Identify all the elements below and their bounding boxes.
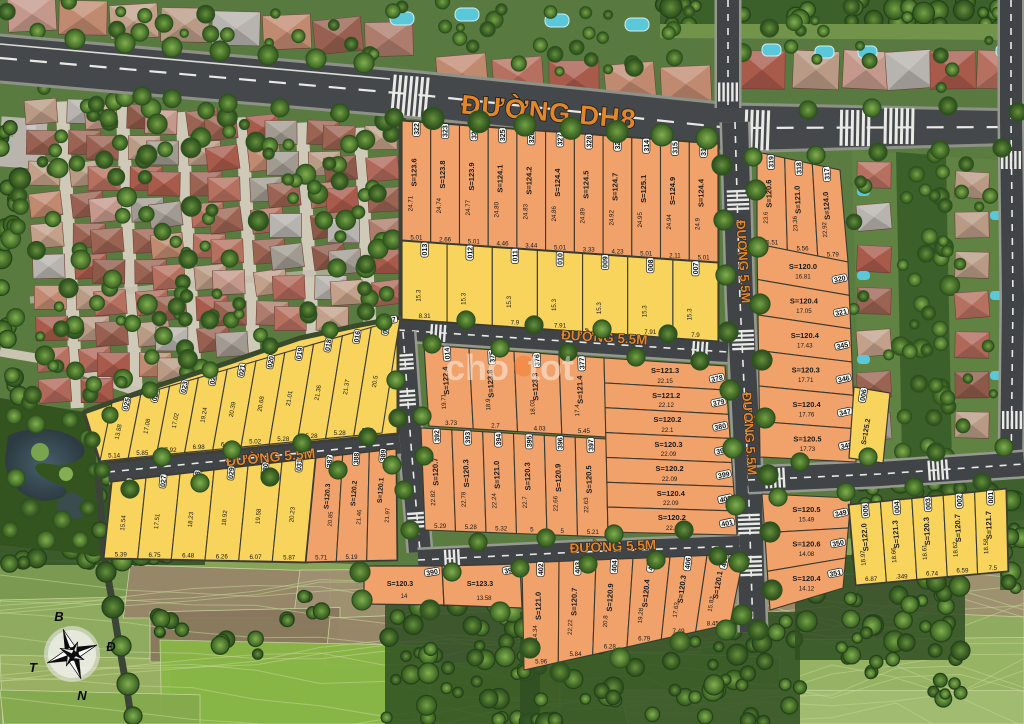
svg-text:007: 007 xyxy=(693,262,700,274)
svg-text:5.79: 5.79 xyxy=(827,252,840,259)
svg-text:6.74: 6.74 xyxy=(926,571,939,578)
svg-text:5.28: 5.28 xyxy=(334,430,347,437)
svg-text:22.1: 22.1 xyxy=(661,427,674,434)
svg-text:S=123.6: S=123.6 xyxy=(409,158,418,186)
svg-text:S=121.0: S=121.0 xyxy=(492,461,502,489)
svg-text:S=121.3: S=121.3 xyxy=(890,520,901,549)
svg-text:24.80: 24.80 xyxy=(494,201,501,217)
svg-text:22.09: 22.09 xyxy=(663,500,679,507)
svg-text:S=121.2: S=121.2 xyxy=(652,391,680,400)
svg-text:S=120.3: S=120.3 xyxy=(523,462,533,490)
svg-text:S=120.9: S=120.9 xyxy=(605,583,615,612)
svg-text:002: 002 xyxy=(957,495,965,507)
svg-text:8.31: 8.31 xyxy=(419,313,432,320)
svg-text:.349: .349 xyxy=(896,573,909,580)
svg-text:18.97: 18.97 xyxy=(859,549,867,566)
svg-text:S=121.7: S=121.7 xyxy=(984,511,994,539)
svg-text:22.7: 22.7 xyxy=(522,496,529,509)
svg-text:S=125.1: S=125.1 xyxy=(639,175,648,203)
svg-text:S=121.4: S=121.4 xyxy=(575,375,585,404)
svg-text:S=120.6: S=120.6 xyxy=(792,540,820,549)
svg-text:18.61: 18.61 xyxy=(921,544,929,560)
svg-text:6.98: 6.98 xyxy=(193,444,206,451)
svg-text:402: 402 xyxy=(538,563,545,575)
svg-text:S=120.2: S=120.2 xyxy=(653,415,681,424)
svg-text:24.77: 24.77 xyxy=(465,199,472,215)
svg-text:5.85: 5.85 xyxy=(136,450,149,457)
svg-text:6.07: 6.07 xyxy=(249,554,262,561)
svg-text:24.86: 24.86 xyxy=(551,205,558,221)
svg-text:315: 315 xyxy=(673,142,680,154)
svg-text:S=120.0: S=120.0 xyxy=(789,262,817,271)
svg-text:6.75: 6.75 xyxy=(148,552,161,559)
svg-text:5.28: 5.28 xyxy=(465,524,478,531)
svg-text:22.63: 22.63 xyxy=(583,497,590,513)
svg-text:S=123.9: S=123.9 xyxy=(467,162,476,190)
svg-text:13.58: 13.58 xyxy=(476,596,492,602)
svg-text:15.3: 15.3 xyxy=(641,305,648,318)
svg-text:011: 011 xyxy=(513,250,520,261)
svg-text:17.4: 17.4 xyxy=(574,404,581,417)
svg-text:S=121.0: S=121.0 xyxy=(534,592,543,620)
svg-text:22.15: 22.15 xyxy=(657,378,673,385)
svg-text:5.84: 5.84 xyxy=(569,651,582,658)
svg-text:5: 5 xyxy=(560,528,564,535)
svg-text:S=124.4: S=124.4 xyxy=(697,178,706,207)
svg-text:24.94: 24.94 xyxy=(666,214,673,230)
svg-text:5.14: 5.14 xyxy=(108,453,121,460)
svg-text:5.32: 5.32 xyxy=(495,525,508,532)
svg-text:388: 388 xyxy=(353,452,361,464)
svg-text:18.62: 18.62 xyxy=(952,541,960,557)
svg-text:406: 406 xyxy=(684,557,692,570)
svg-text:6.87: 6.87 xyxy=(865,576,878,583)
svg-text:7.5: 7.5 xyxy=(988,565,997,572)
svg-text:Đ: Đ xyxy=(106,639,116,654)
svg-text:17.05: 17.05 xyxy=(796,308,812,315)
svg-text:24.83: 24.83 xyxy=(522,203,529,219)
svg-text:18.9: 18.9 xyxy=(485,398,493,411)
svg-text:S=120.7: S=120.7 xyxy=(569,588,579,616)
svg-text:24.92: 24.92 xyxy=(609,209,616,225)
svg-text:5.21: 5.21 xyxy=(587,529,600,536)
svg-text:S=120.3: S=120.3 xyxy=(792,366,820,375)
svg-text:397: 397 xyxy=(588,439,595,451)
svg-text:010: 010 xyxy=(558,253,565,265)
svg-text:395: 395 xyxy=(527,435,534,447)
svg-text:S=120.7: S=120.7 xyxy=(953,514,963,543)
svg-text:22.24: 22.24 xyxy=(491,492,499,508)
svg-text:S=120.3: S=120.3 xyxy=(654,440,682,449)
svg-text:S=124.7: S=124.7 xyxy=(611,173,620,201)
svg-text:23.6: 23.6 xyxy=(763,211,770,224)
svg-text:14.12: 14.12 xyxy=(799,585,815,592)
svg-text:16.81: 16.81 xyxy=(795,274,811,281)
svg-text:15.3: 15.3 xyxy=(686,308,693,321)
svg-text:S=124.5: S=124.5 xyxy=(582,171,591,199)
svg-text:S=120.3: S=120.3 xyxy=(922,517,933,546)
svg-text:001: 001 xyxy=(988,492,995,504)
svg-text:S=120.4: S=120.4 xyxy=(657,489,686,498)
svg-text:17.43: 17.43 xyxy=(797,343,813,350)
svg-text:N: N xyxy=(77,688,87,703)
svg-text:S=121.0: S=121.0 xyxy=(793,185,803,214)
svg-text:5.71: 5.71 xyxy=(315,555,328,562)
svg-text:013: 013 xyxy=(422,244,429,256)
svg-text:5.96: 5.96 xyxy=(535,659,548,666)
svg-text:22.78: 22.78 xyxy=(460,491,468,507)
svg-text:15.3: 15.3 xyxy=(461,292,468,305)
svg-text:7.9: 7.9 xyxy=(691,332,700,339)
svg-text:17.71: 17.71 xyxy=(798,377,814,384)
svg-text:012: 012 xyxy=(467,247,474,259)
svg-text:17.76: 17.76 xyxy=(799,411,815,418)
svg-text:tot: tot xyxy=(528,347,574,388)
svg-text:6.79: 6.79 xyxy=(638,636,651,643)
svg-text:S=120.7: S=120.7 xyxy=(430,457,440,485)
svg-text:24.74: 24.74 xyxy=(436,197,443,213)
svg-text:6.26: 6.26 xyxy=(216,553,229,560)
svg-text:377: 377 xyxy=(579,357,586,369)
svg-text:S=123.8: S=123.8 xyxy=(438,160,447,188)
svg-text:S=120.4: S=120.4 xyxy=(793,400,822,409)
svg-text:S=120.3: S=120.3 xyxy=(461,459,471,487)
svg-text:328: 328 xyxy=(586,136,593,148)
svg-text:5.45: 5.45 xyxy=(578,428,591,435)
svg-text:22.12: 22.12 xyxy=(658,402,674,409)
svg-text:S=120.5: S=120.5 xyxy=(584,465,594,493)
svg-text:cho: cho xyxy=(445,347,509,388)
svg-text:404: 404 xyxy=(611,560,619,572)
svg-text:5.02: 5.02 xyxy=(249,439,262,446)
svg-text:S=120.5: S=120.5 xyxy=(793,434,821,443)
svg-text:5.56: 5.56 xyxy=(796,246,809,253)
svg-text:009: 009 xyxy=(603,256,610,268)
svg-text:323: 323 xyxy=(443,125,450,137)
svg-text:S=120.4: S=120.4 xyxy=(792,574,821,583)
svg-text:S=120.4: S=120.4 xyxy=(791,331,820,340)
svg-text:5.87: 5.87 xyxy=(283,555,296,562)
svg-text:5: 5 xyxy=(530,527,534,534)
svg-text:008: 008 xyxy=(648,259,655,271)
svg-text:20.85: 20.85 xyxy=(328,511,335,527)
svg-text:7.9: 7.9 xyxy=(511,319,520,326)
svg-text:24.89: 24.89 xyxy=(580,207,587,223)
svg-text:S=120.3: S=120.3 xyxy=(387,581,413,588)
svg-text:3.73: 3.73 xyxy=(445,420,458,427)
svg-text:22.82: 22.82 xyxy=(430,490,438,506)
svg-text:004: 004 xyxy=(894,501,902,513)
svg-text:027: 027 xyxy=(160,475,168,487)
svg-text:396: 396 xyxy=(557,437,564,449)
svg-text:005: 005 xyxy=(862,504,870,516)
svg-text:2.7: 2.7 xyxy=(491,423,500,430)
svg-text:24.9: 24.9 xyxy=(695,217,702,230)
svg-text:319: 319 xyxy=(768,156,775,168)
svg-text:394: 394 xyxy=(496,434,503,446)
svg-text:322: 322 xyxy=(414,123,421,135)
svg-text:5.29: 5.29 xyxy=(434,523,447,530)
svg-text:22.09: 22.09 xyxy=(662,476,678,483)
svg-text:18.58: 18.58 xyxy=(983,538,991,554)
svg-text:S=120.2: S=120.2 xyxy=(656,464,684,473)
svg-text:S=124.9: S=124.9 xyxy=(668,177,677,205)
svg-text:4.03: 4.03 xyxy=(534,425,547,432)
svg-text:5.19: 5.19 xyxy=(345,554,358,561)
svg-text:392: 392 xyxy=(434,430,441,442)
svg-text:S=120.9: S=120.9 xyxy=(553,464,563,492)
svg-text:24.71: 24.71 xyxy=(407,195,414,211)
svg-text:393: 393 xyxy=(465,432,472,444)
svg-text:S=120.5: S=120.5 xyxy=(792,505,820,514)
svg-text:14.08: 14.08 xyxy=(799,551,815,558)
svg-text:15.49: 15.49 xyxy=(799,517,815,524)
svg-text:22.92: 22.92 xyxy=(821,221,829,238)
svg-text:18.03: 18.03 xyxy=(529,399,537,415)
svg-text:5.39: 5.39 xyxy=(115,551,128,558)
svg-text:S=124.2: S=124.2 xyxy=(524,167,533,195)
svg-text:325: 325 xyxy=(500,129,507,141)
svg-text:15.3: 15.3 xyxy=(596,302,603,315)
svg-text:21.46: 21.46 xyxy=(356,509,363,525)
svg-text:23.36: 23.36 xyxy=(792,215,800,231)
svg-text:22.09: 22.09 xyxy=(661,451,677,458)
svg-text:24.95: 24.95 xyxy=(637,211,644,227)
svg-text:22.66: 22.66 xyxy=(552,495,559,511)
svg-text:21.97: 21.97 xyxy=(385,507,392,523)
svg-text:19.71: 19.71 xyxy=(440,393,448,409)
svg-text:S=120.4: S=120.4 xyxy=(790,297,819,306)
svg-text:19.28: 19.28 xyxy=(637,607,645,624)
svg-text:6.59: 6.59 xyxy=(956,568,969,575)
svg-text:14: 14 xyxy=(401,594,408,600)
svg-text:S=123.3: S=123.3 xyxy=(467,581,493,588)
svg-text:15.3: 15.3 xyxy=(416,289,423,302)
svg-text:17.73: 17.73 xyxy=(800,446,816,453)
svg-text:S=121.3: S=121.3 xyxy=(651,366,679,375)
svg-text:318: 318 xyxy=(796,162,804,174)
svg-text:314: 314 xyxy=(644,140,651,152)
svg-text:S=124.4: S=124.4 xyxy=(553,168,562,197)
svg-text:22.22: 22.22 xyxy=(567,619,574,635)
svg-text:5.28: 5.28 xyxy=(277,436,290,443)
svg-text:18.66: 18.66 xyxy=(890,547,898,563)
svg-text:003: 003 xyxy=(925,498,933,510)
svg-text:6.48: 6.48 xyxy=(182,553,195,560)
svg-text:15.3: 15.3 xyxy=(506,295,513,308)
svg-text:15.3: 15.3 xyxy=(551,298,558,311)
svg-text:317: 317 xyxy=(824,168,832,180)
svg-text:B: B xyxy=(54,609,63,624)
svg-text:20.8: 20.8 xyxy=(602,615,610,628)
svg-text:S=124.1: S=124.1 xyxy=(496,165,505,193)
svg-text:T: T xyxy=(29,660,38,675)
